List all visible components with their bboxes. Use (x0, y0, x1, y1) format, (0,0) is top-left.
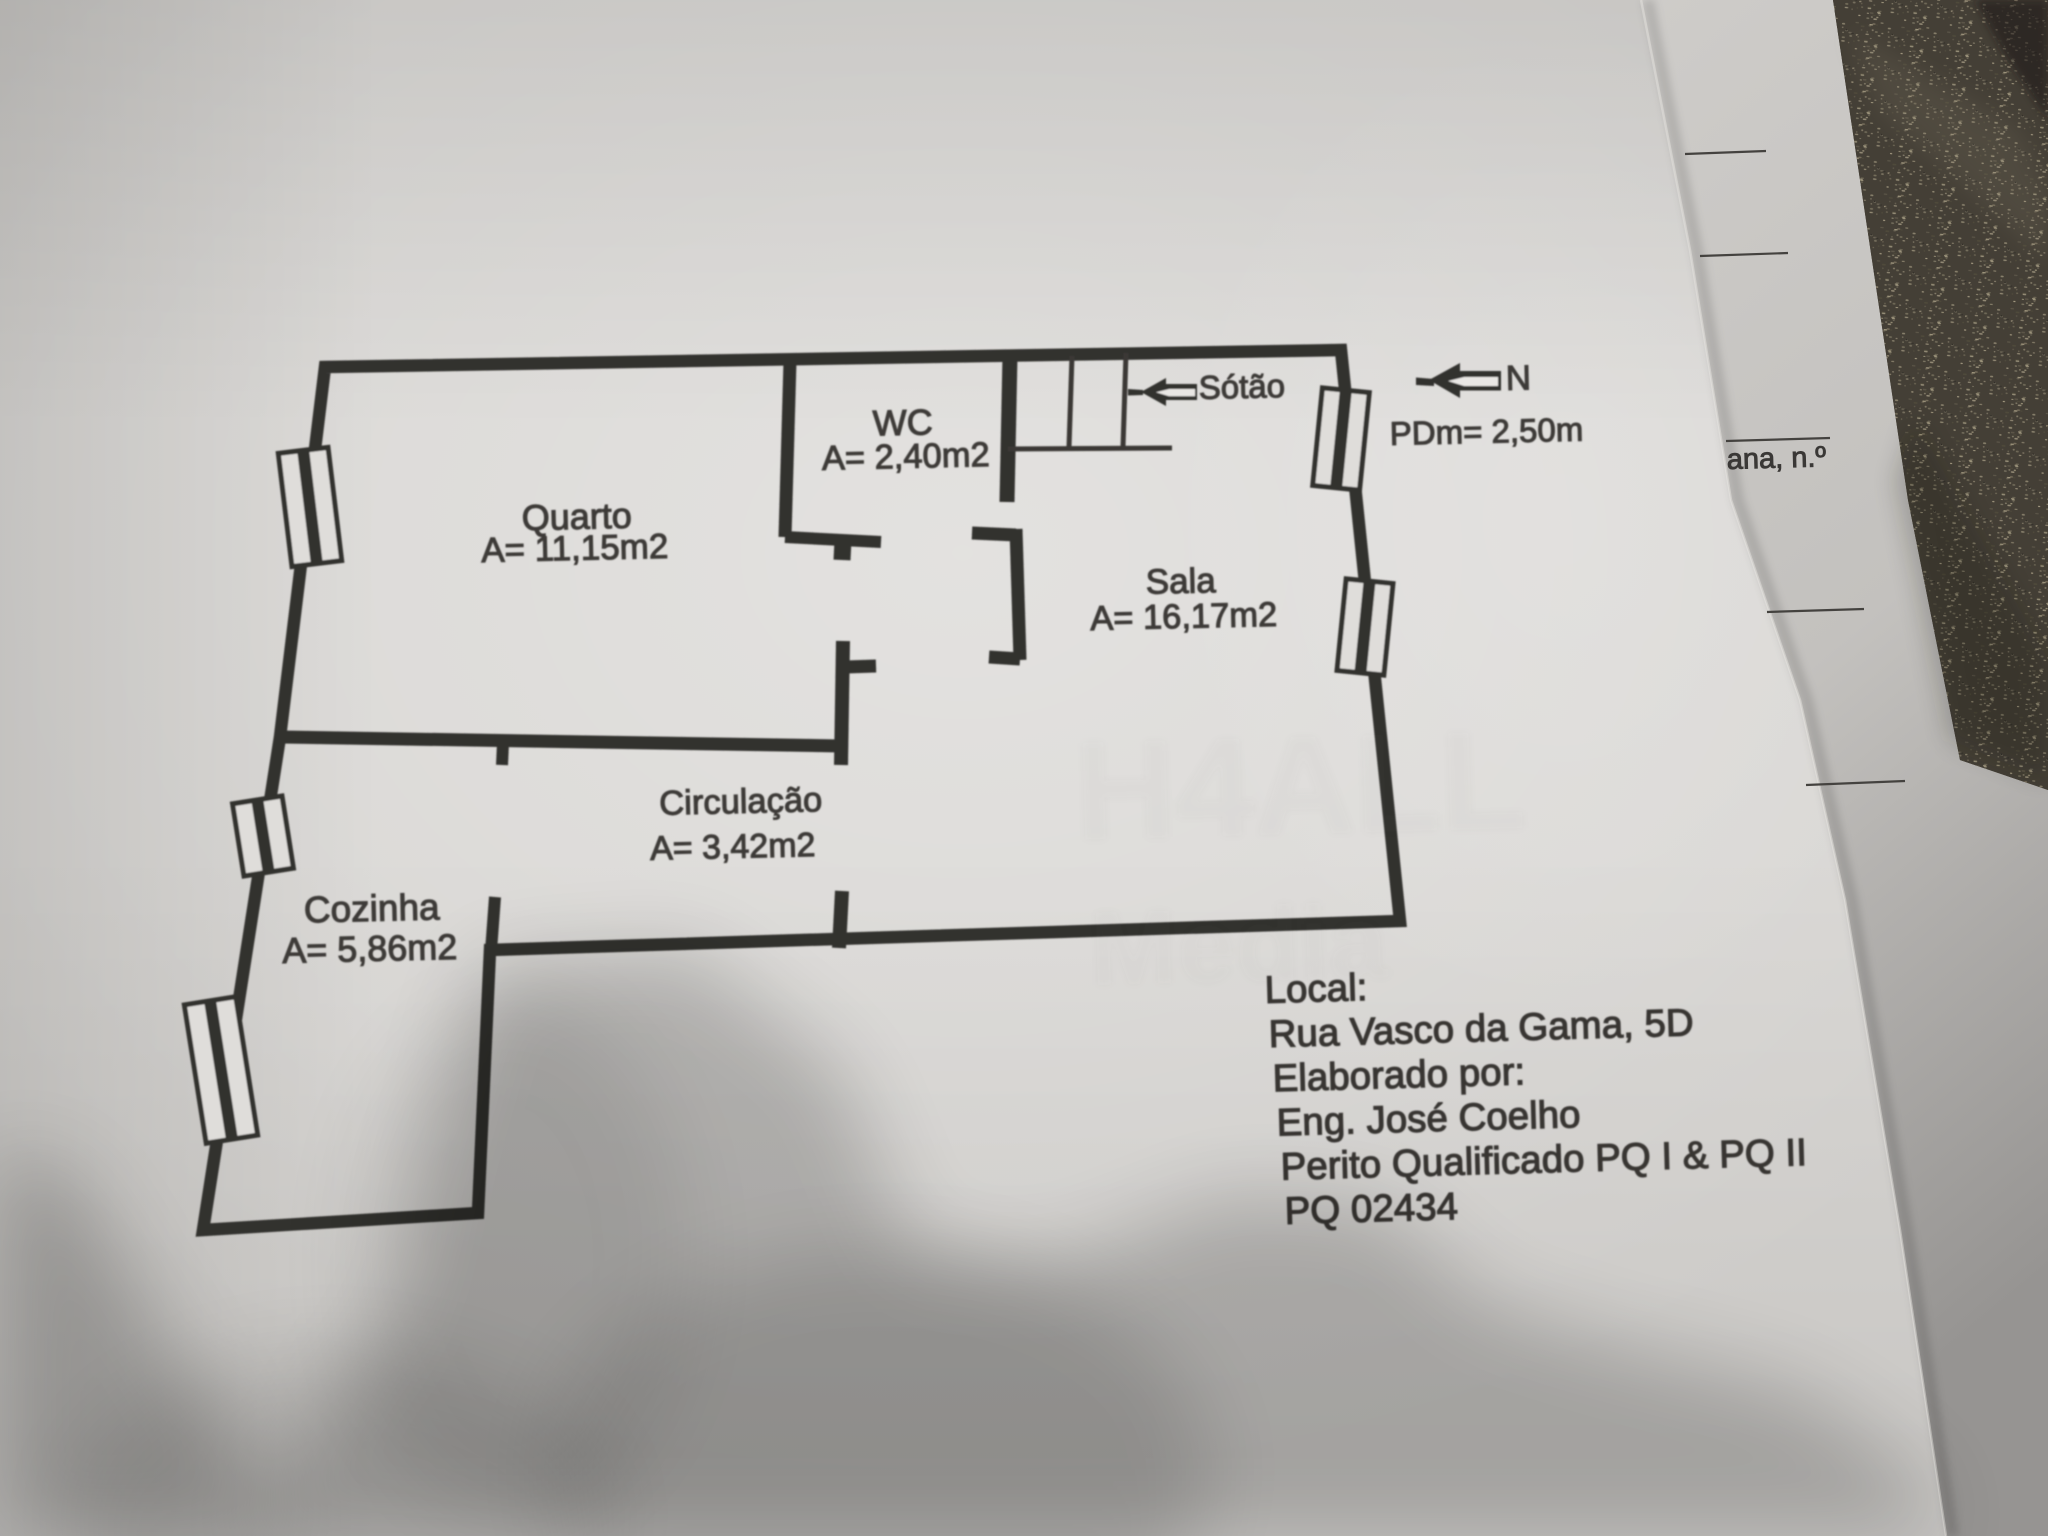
svg-text:A= 16,17m2: A= 16,17m2 (1090, 596, 1278, 638)
svg-text:Cozinha: Cozinha (303, 886, 440, 930)
svg-text:PDm= 2,50m: PDm= 2,50m (1389, 411, 1583, 452)
svg-text:A= 3,42m2: A= 3,42m2 (650, 826, 816, 868)
svg-text:A= 11,15m2: A= 11,15m2 (481, 527, 669, 570)
svg-text:Eng. José Coelho: Eng. José Coelho (1276, 1093, 1581, 1144)
svg-text:A= 5,86m2: A= 5,86m2 (282, 926, 458, 971)
svg-text:Elaborado por:: Elaborado por: (1272, 1050, 1526, 1100)
svg-text:A= 2,40m2: A= 2,40m2 (821, 436, 990, 478)
svg-text:Local:: Local: (1264, 966, 1368, 1012)
svg-text:Circulação: Circulação (659, 781, 823, 823)
svg-text:H4ALL: H4ALL (1073, 701, 1528, 870)
svg-text:N: N (1505, 358, 1531, 398)
svg-text:Sala: Sala (1145, 561, 1216, 602)
svg-text:Sótão: Sótão (1198, 367, 1285, 406)
svg-text:ana, n.º: ana, n.º (1726, 441, 1826, 476)
